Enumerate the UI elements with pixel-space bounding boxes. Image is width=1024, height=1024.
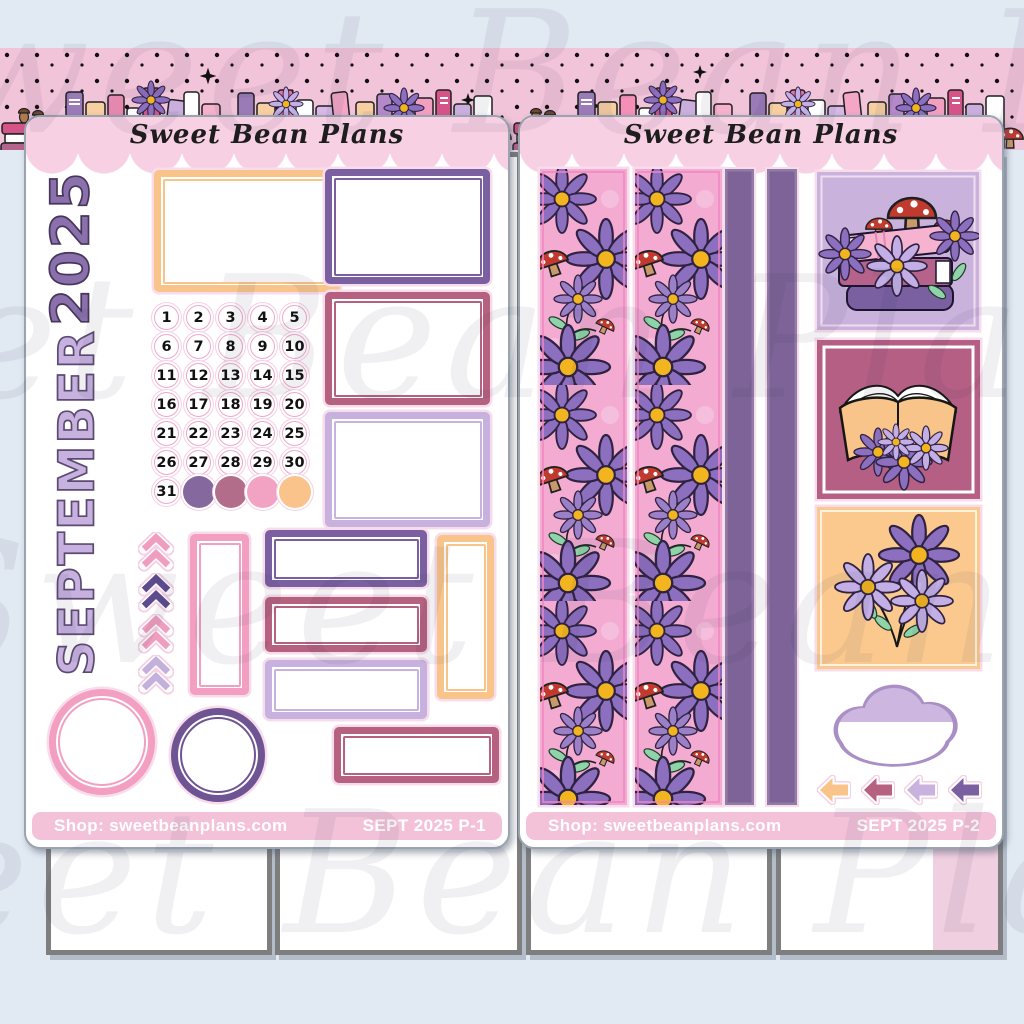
color-dot-sticker [183, 476, 215, 508]
shop-url: Shop: sweetbeanplans.com [548, 816, 781, 836]
tall-box-sticker-pink [190, 534, 249, 695]
date-sticker: 7 [186, 334, 211, 359]
sticker-sheet-p2: Sweet Bean Plans [518, 115, 1004, 849]
date-sticker: 23 [218, 421, 243, 446]
date-sticker: 21 [154, 421, 179, 446]
daisy-bouquet-box-sticker [817, 507, 980, 669]
date-sticker: 4 [250, 305, 275, 330]
date-sticker: 2 [186, 305, 211, 330]
sheet-header: Sweet Bean Plans [26, 117, 508, 154]
date-sticker: 3 [218, 305, 243, 330]
sheet-footer: Shop: sweetbeanplans.com SEPT 2025 P-1 [32, 812, 502, 840]
date-sticker: 11 [154, 363, 179, 388]
cloud-sticker [819, 672, 969, 775]
quarter-box-sticker-lavender [265, 660, 427, 719]
arrow-sticker-purple [948, 775, 982, 805]
sheet-header: Sweet Bean Plans [520, 117, 1002, 154]
full-box-sticker-peach [154, 170, 340, 292]
quarter-box-sticker-purple [265, 530, 427, 587]
date-sticker: 14 [250, 363, 275, 388]
color-dot-sticker [247, 476, 279, 508]
arrow-sticker-peach [817, 775, 851, 805]
arrow-sticker-mauve [861, 775, 895, 805]
date-sticker: 10 [282, 334, 307, 359]
date-sticker: 27 [186, 450, 211, 475]
date-sticker: 8 [218, 334, 243, 359]
date-sticker: 1 [154, 305, 179, 330]
date-sticker: 31 [154, 479, 179, 504]
circle-sticker-pink [49, 689, 155, 795]
date-sticker: 30 [282, 450, 307, 475]
date-sticker: 18 [218, 392, 243, 417]
circle-sticker-purple [171, 708, 265, 802]
date-sticker: 16 [154, 392, 179, 417]
product-mockup: Sweet Bean Plans 2025 SEPTEMBER 12345678… [0, 0, 1024, 1024]
floral-washi-strip-2 [635, 169, 722, 805]
chevron-sticker-1 [138, 532, 174, 572]
solid-purple-strip-2 [767, 169, 797, 805]
shop-url: Shop: sweetbeanplans.com [54, 816, 287, 836]
quarter-box-sticker-mauve [265, 597, 427, 652]
sheet-code: SEPT 2025 P-2 [857, 816, 980, 836]
year-sticker: 2025 [38, 167, 104, 329]
book-stack-box-sticker [817, 172, 979, 330]
open-book-box-sticker [817, 340, 980, 499]
date-sticker: 22 [186, 421, 211, 446]
full-box-sticker-purple [325, 169, 490, 284]
chevron-sticker-3 [138, 614, 174, 654]
chevron-sticker-2 [138, 573, 174, 613]
date-sticker: 19 [250, 392, 275, 417]
full-box-sticker-lavender [325, 412, 490, 527]
full-box-sticker-mauve [325, 292, 490, 405]
sticker-sheet-p1: Sweet Bean Plans 2025 SEPTEMBER 12345678… [24, 115, 510, 849]
brand-script-title: Sweet Bean Plans [26, 120, 508, 150]
date-sticker: 29 [250, 450, 275, 475]
date-sticker: 17 [186, 392, 211, 417]
tall-box-sticker-peach [437, 535, 494, 699]
color-dot-sticker [279, 476, 311, 508]
sheet-code: SEPT 2025 P-1 [363, 816, 486, 836]
brand-script-title: Sweet Bean Plans [520, 120, 1002, 150]
date-sticker: 15 [282, 363, 307, 388]
sheet-footer: Shop: sweetbeanplans.com SEPT 2025 P-2 [526, 812, 996, 840]
month-sticker: SEPTEMBER [42, 327, 112, 679]
chevron-sticker-4 [138, 655, 174, 695]
floral-washi-strip-1 [540, 169, 627, 805]
date-sticker: 9 [250, 334, 275, 359]
date-sticker: 12 [186, 363, 211, 388]
date-sticker: 24 [250, 421, 275, 446]
date-sticker: 6 [154, 334, 179, 359]
date-sticker: 5 [282, 305, 307, 330]
date-sticker: 20 [282, 392, 307, 417]
solid-purple-strip-1 [725, 169, 754, 805]
date-sticker: 25 [282, 421, 307, 446]
date-sticker: 26 [154, 450, 179, 475]
date-sticker: 13 [218, 363, 243, 388]
arrow-sticker-lavender [904, 775, 938, 805]
date-sticker: 28 [218, 450, 243, 475]
date-grid: 1234567891011121314151617181920212223242… [152, 305, 309, 504]
color-dot-sticker [215, 476, 247, 508]
wide-box-sticker-mauve [334, 727, 499, 783]
